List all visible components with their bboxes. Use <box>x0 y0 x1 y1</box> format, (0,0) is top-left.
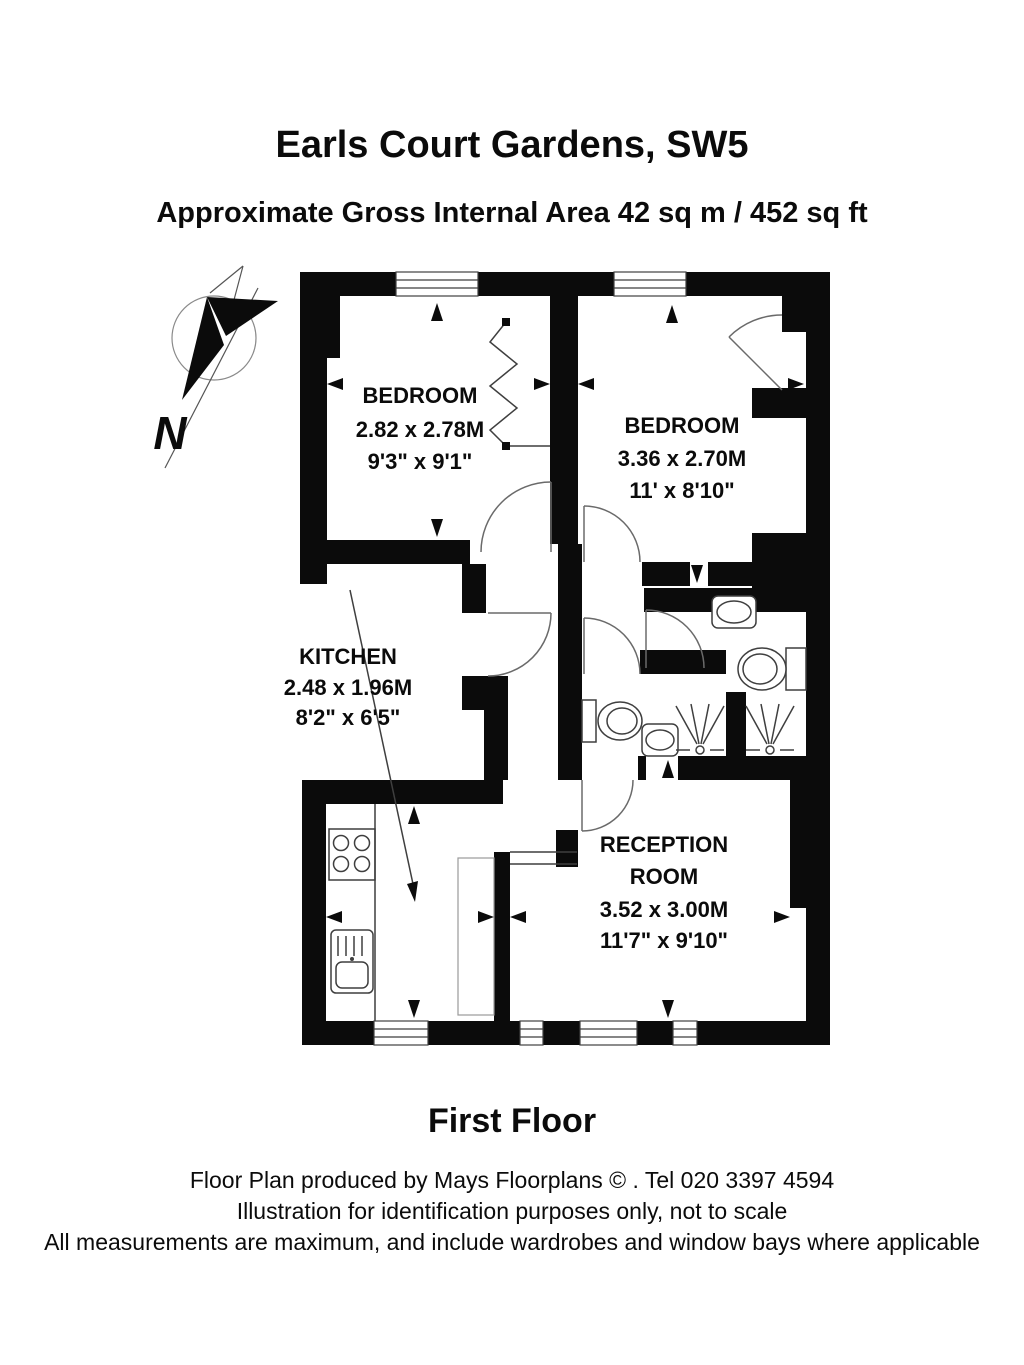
page-title: Earls Court Gardens, SW5 <box>275 124 748 166</box>
compass-icon: N <box>153 266 278 468</box>
door-bedroom1 <box>481 482 551 552</box>
bedroom2-size-imperial: 11' x 8'10" <box>629 478 734 503</box>
toilet-left-icon <box>582 700 642 742</box>
kitchen-sink-icon <box>331 930 373 993</box>
compass-north-label: N <box>153 407 187 459</box>
page-subtitle: Approximate Gross Internal Area 42 sq m … <box>156 197 868 229</box>
door-entrance <box>488 613 551 676</box>
toilet-right-icon <box>738 648 806 690</box>
shower-left-icon <box>676 704 724 754</box>
basin-left-icon <box>642 724 678 756</box>
bedroom1-size-imperial: 9'3" x 9'1" <box>368 449 473 474</box>
window-kitchen <box>374 1021 428 1045</box>
door-bedroom2-left <box>584 506 640 562</box>
reception-name-line1: RECEPTION <box>600 832 728 857</box>
bedroom2-size-metric: 3.36 x 2.70M <box>618 446 746 471</box>
bedroom1-size-metric: 2.82 x 2.78M <box>356 417 484 442</box>
reception-size-imperial: 11'7" x 9'10" <box>600 928 728 953</box>
window-reception-1 <box>520 1021 543 1045</box>
shower-right-icon <box>746 704 794 754</box>
door-bedroom2-right <box>729 315 782 390</box>
window-bedroom2 <box>614 272 686 296</box>
bedroom2-name: BEDROOM <box>625 413 740 438</box>
reception-size-metric: 3.52 x 3.00M <box>600 897 728 922</box>
door-reception <box>582 780 633 831</box>
kitchen-size-metric: 2.48 x 1.96M <box>284 675 412 700</box>
floor-plan: Earls Court Gardens, SW5 Approximate Gro… <box>0 0 1024 1365</box>
floorplan-page: Earls Court Gardens, SW5 Approximate Gro… <box>0 0 1024 1365</box>
footer-line-2: Illustration for identification purposes… <box>237 1198 788 1224</box>
window-reception-2 <box>580 1021 637 1045</box>
window-reception-3 <box>673 1021 697 1045</box>
bedroom1-name: BEDROOM <box>363 383 478 408</box>
footer-line-3: All measurements are maximum, and includ… <box>44 1229 980 1255</box>
kitchen-name: KITCHEN <box>299 644 397 669</box>
window-bedroom1 <box>396 272 478 296</box>
kitchen-size-imperial: 8'2" x 6'5" <box>296 705 401 730</box>
floor-label: First Floor <box>428 1102 596 1140</box>
footer-line-1: Floor Plan produced by Mays Floorplans ©… <box>190 1167 835 1193</box>
basin-right-icon <box>712 596 756 628</box>
hob-icon <box>329 829 375 880</box>
door-shower-left <box>584 618 640 674</box>
reception-name-line2: ROOM <box>630 864 698 889</box>
